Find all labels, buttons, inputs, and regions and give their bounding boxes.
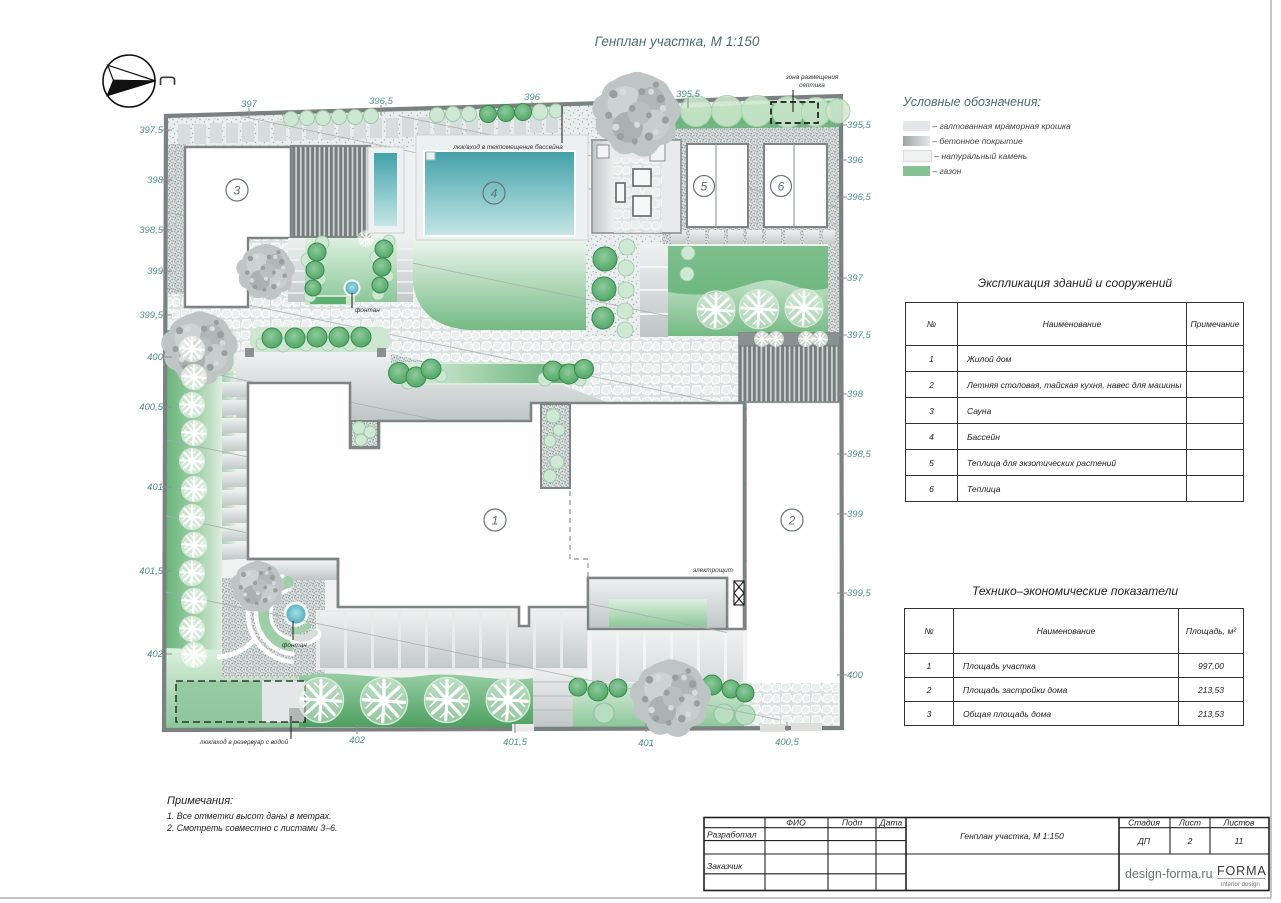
- svg-text:Разработал: Разработал: [707, 830, 757, 840]
- svg-text:interior design: interior design: [1221, 881, 1260, 888]
- svg-text:Генплан участка, М 1:150: Генплан участка, М 1:150: [960, 831, 1064, 841]
- svg-text:Подп: Подп: [842, 818, 863, 828]
- svg-text:FORMA: FORMA: [1217, 864, 1267, 878]
- svg-text:11: 11: [1235, 836, 1244, 846]
- svg-text:Листов: Листов: [1223, 818, 1256, 828]
- svg-text:Заказчик: Заказчик: [707, 861, 743, 871]
- svg-text:Лист: Лист: [1178, 818, 1201, 828]
- svg-text:Дата: Дата: [879, 818, 903, 828]
- svg-text:Стадия: Стадия: [1128, 818, 1160, 828]
- svg-text:2: 2: [1187, 836, 1193, 846]
- svg-text:ФИО: ФИО: [786, 818, 806, 828]
- svg-text:ДП: ДП: [1137, 836, 1151, 846]
- svg-text:design-forma.ru: design-forma.ru: [1125, 867, 1213, 881]
